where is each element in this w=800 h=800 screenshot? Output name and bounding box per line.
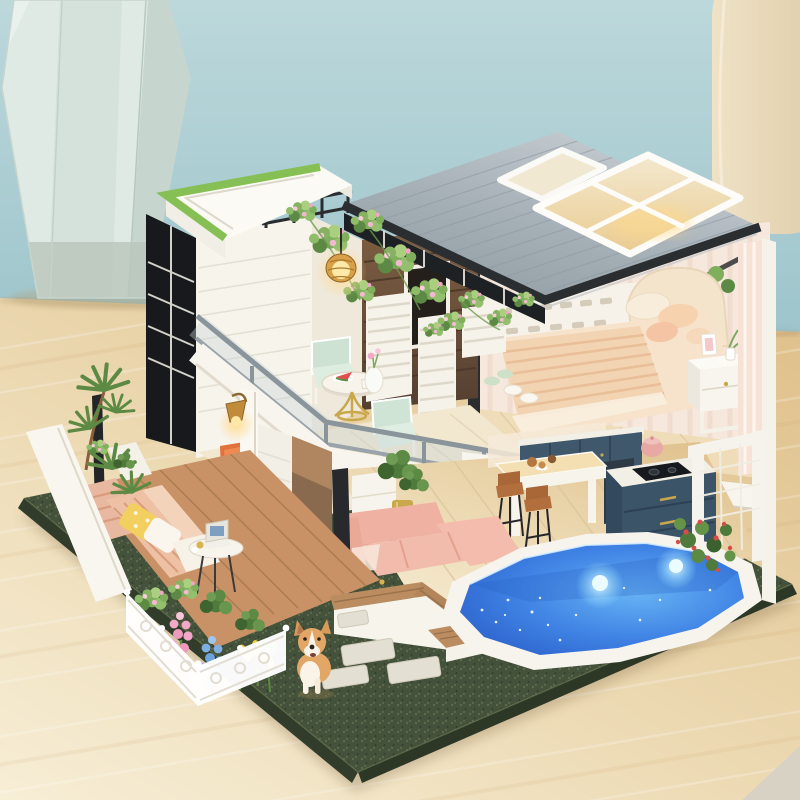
- right-corner-post: [762, 238, 776, 604]
- photo-miniature-dollhouse: [0, 0, 800, 800]
- scene-canvas: [0, 0, 800, 800]
